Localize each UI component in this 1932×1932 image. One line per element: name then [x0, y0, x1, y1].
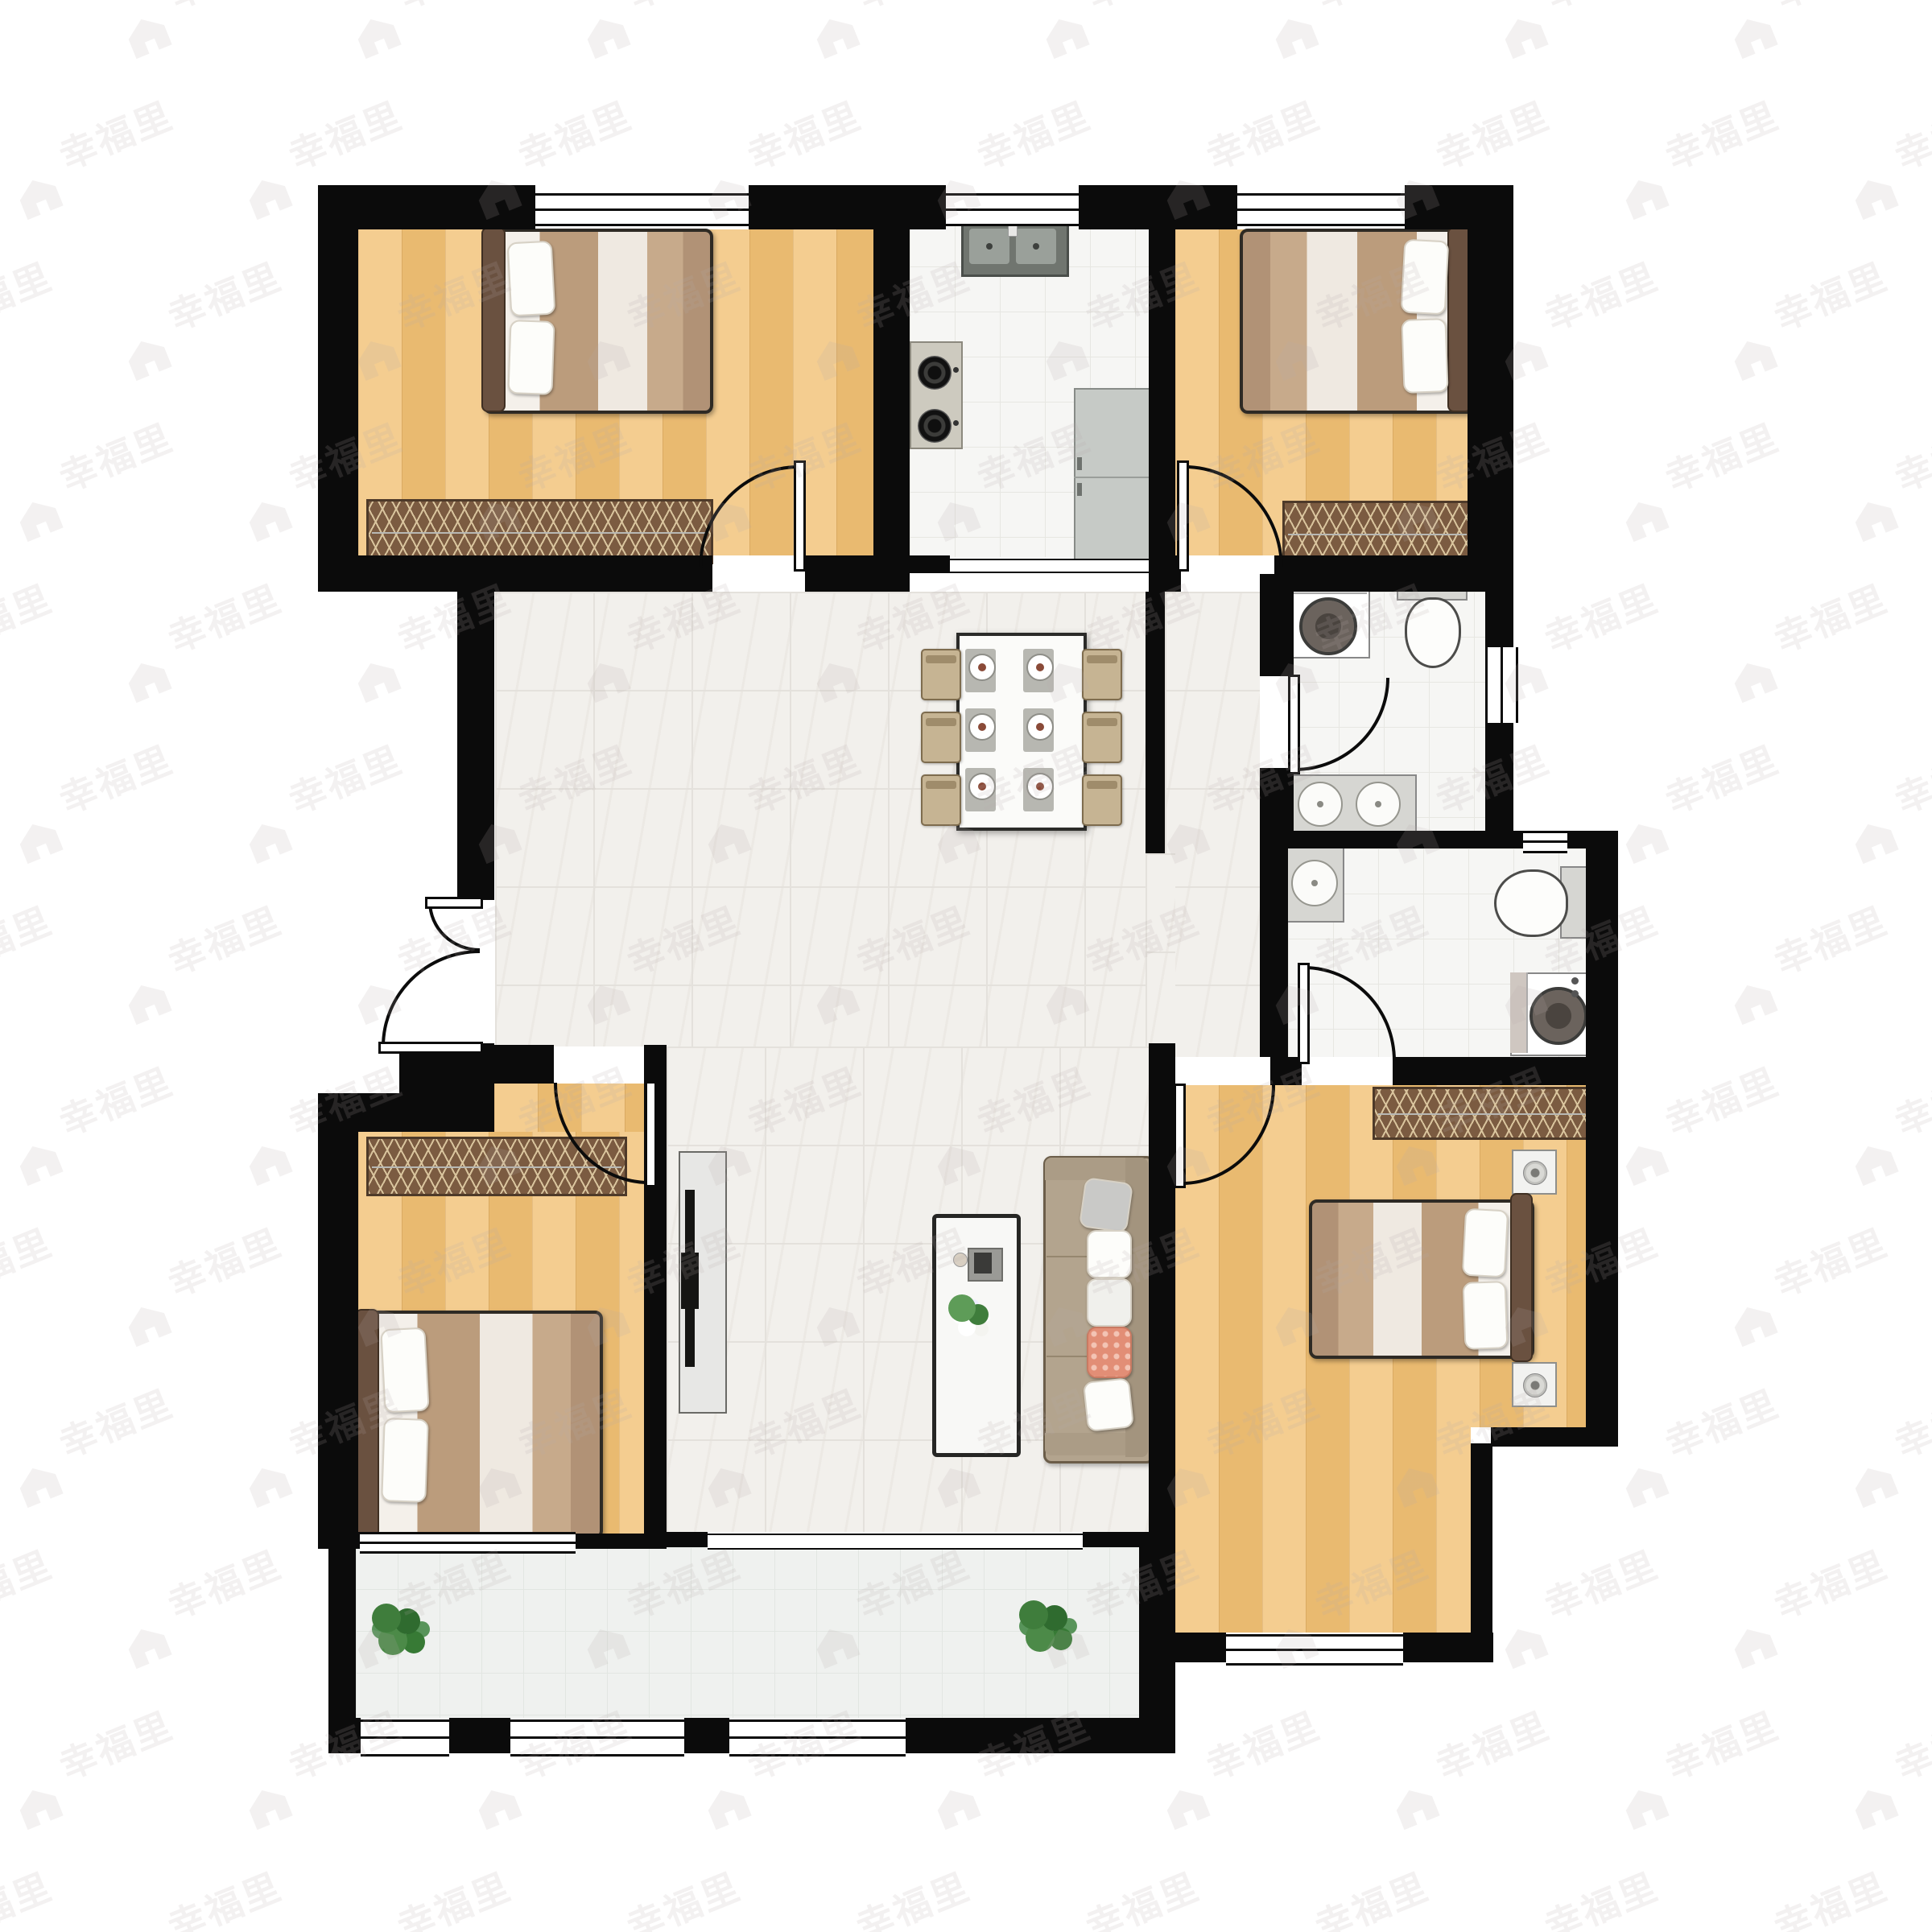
wall — [576, 1534, 664, 1549]
watermark-unit: 幸福里 — [1025, 0, 1237, 73]
nightstand — [1512, 1362, 1557, 1407]
watermark-text: 幸福里 — [1657, 1697, 1786, 1790]
sofa-pillow-coral — [1087, 1327, 1132, 1378]
watermark-unit: 幸福里 — [336, 0, 549, 73]
watermark-text: 幸福里 — [739, 87, 869, 180]
wall — [684, 1718, 729, 1753]
window — [360, 1532, 576, 1554]
watermark-unit: 幸福里 — [0, 1851, 90, 1932]
watermark-unit: 幸福里 — [0, 241, 90, 395]
balcony-sliding-door — [708, 1534, 1083, 1550]
wall — [1586, 848, 1618, 1057]
window — [361, 1719, 449, 1757]
window — [946, 193, 1079, 226]
watermark-text: 幸福里 — [159, 1536, 289, 1629]
watermark-text: 幸福里 — [159, 1214, 289, 1307]
bed-top-left-headboard — [481, 227, 506, 412]
house-icon — [242, 169, 296, 224]
plate — [968, 713, 996, 741]
burner — [918, 356, 952, 390]
house-icon — [1727, 652, 1781, 707]
watermark-unit: 幸福里 — [1604, 1690, 1817, 1844]
house-icon — [1618, 491, 1673, 546]
pillow — [507, 241, 556, 317]
door-leaf-bathroom-main — [1288, 675, 1300, 774]
watermark-text: 幸福里 — [1765, 248, 1895, 341]
wall — [1260, 831, 1523, 848]
sofa-armrest — [1045, 1433, 1125, 1455]
wall — [1403, 1633, 1493, 1662]
watermark-text: 幸福里 — [1077, 1858, 1207, 1932]
watermark-text: 幸福里 — [51, 1375, 180, 1468]
wall — [1146, 592, 1165, 853]
window — [1485, 647, 1518, 723]
watermark-text: 幸福里 — [159, 248, 289, 341]
sofa-pillow — [1087, 1278, 1132, 1327]
house-icon — [12, 813, 67, 868]
dining-chair — [921, 712, 961, 763]
stove-knob — [953, 367, 959, 373]
watermark-unit: 幸福里 — [1484, 1851, 1696, 1932]
house-icon — [1847, 1457, 1902, 1512]
watermark-text: 幸福里 — [1765, 0, 1895, 19]
washbasin — [1291, 860, 1338, 906]
wall — [318, 1093, 358, 1549]
plate — [1026, 773, 1054, 800]
kitchen-opening-threshold — [950, 559, 1149, 573]
pillow — [381, 1418, 429, 1503]
watermark-text: 幸福里 — [159, 570, 289, 663]
sofa-pillow — [1087, 1230, 1132, 1278]
potted-plant — [372, 1604, 401, 1633]
watermark-text: 幸福里 — [0, 570, 60, 663]
house-icon — [121, 974, 175, 1029]
house-icon — [471, 1779, 526, 1834]
wall — [318, 185, 358, 592]
door-leaf-master-bedroom — [1174, 1084, 1186, 1188]
watermark-text: 幸福里 — [389, 1858, 518, 1932]
wall — [1083, 1532, 1149, 1547]
door-leaf-bathroom-ensuite — [1298, 963, 1310, 1064]
watermark-unit: 幸福里 — [1146, 1690, 1358, 1844]
house-icon — [1159, 1779, 1214, 1834]
wall — [449, 1718, 510, 1753]
watermark-unit: 幸福里 — [0, 80, 211, 234]
wall — [1149, 185, 1175, 572]
drain — [986, 243, 993, 250]
plate — [968, 773, 996, 800]
watermark-text: 幸福里 — [1536, 570, 1666, 663]
door-leaf-bedroom-bottom-left — [645, 1081, 657, 1187]
watermark-text: 幸福里 — [618, 0, 748, 19]
watermark-text: 幸福里 — [1886, 731, 1932, 824]
watermark-unit: 幸福里 — [0, 1046, 211, 1200]
house-icon — [121, 652, 175, 707]
watermark-unit: 幸福里 — [1484, 241, 1696, 395]
watermark-text: 幸福里 — [51, 409, 180, 502]
house-icon — [1727, 1296, 1781, 1351]
watermark-unit: 幸福里 — [1604, 1046, 1817, 1200]
watermark-text: 幸福里 — [1886, 409, 1932, 502]
book — [974, 1253, 992, 1274]
pillow — [380, 1327, 429, 1414]
house-icon — [1847, 813, 1902, 868]
wall — [1175, 185, 1237, 229]
watermark-unit: 幸福里 — [566, 1851, 778, 1932]
watermark-unit: 幸福里 — [107, 1851, 320, 1932]
house-icon — [1727, 8, 1781, 63]
dining-chair — [1082, 649, 1122, 700]
watermark-unit: 幸福里 — [1834, 1690, 1932, 1844]
wall — [906, 1718, 1139, 1753]
watermark-unit: 幸福里 — [0, 1207, 90, 1361]
sofa-pillow-gray — [1079, 1177, 1133, 1233]
watermark-text: 幸福里 — [848, 1858, 977, 1932]
watermark-unit: 幸福里 — [107, 885, 320, 1039]
watermark-text: 幸福里 — [159, 892, 289, 985]
cup — [953, 1253, 968, 1267]
window — [1237, 193, 1405, 226]
floor-balcony — [356, 1547, 1139, 1718]
house-icon — [1847, 1779, 1902, 1834]
watermark-unit: 幸福里 — [0, 402, 211, 556]
vanity-basin — [1298, 782, 1343, 827]
window — [729, 1719, 906, 1757]
watermark-unit: 幸福里 — [107, 1529, 320, 1683]
watermark-unit: 幸福里 — [0, 885, 90, 1039]
watermark-text: 幸福里 — [0, 1214, 60, 1307]
pillow — [1401, 239, 1450, 316]
wall — [328, 1718, 361, 1753]
wall — [910, 185, 946, 229]
plate — [1026, 713, 1054, 741]
watermark-text: 幸福里 — [0, 1858, 60, 1932]
house-icon — [1618, 169, 1673, 224]
house-icon — [1497, 1618, 1552, 1673]
watermark-unit: 幸福里 — [1834, 402, 1932, 556]
wall — [1471, 1443, 1492, 1662]
house-icon — [1497, 8, 1552, 63]
refrigerator — [1074, 388, 1153, 573]
watermark-unit: 幸福里 — [0, 1529, 90, 1683]
watermark-unit: 幸福里 — [1834, 1368, 1932, 1522]
watermark-unit: 幸福里 — [1834, 80, 1932, 234]
watermark-unit: 幸福里 — [107, 563, 320, 717]
watermark-unit: 幸福里 — [0, 563, 90, 717]
watermark-text: 幸福里 — [51, 731, 180, 824]
watermark-text: 幸福里 — [848, 0, 977, 19]
house-icon — [1847, 1135, 1902, 1190]
house-icon — [350, 8, 405, 63]
watermark-unit: 幸福里 — [1604, 80, 1817, 234]
house-icon — [1389, 1779, 1443, 1834]
wall — [1485, 576, 1513, 647]
house-icon — [1727, 1618, 1781, 1673]
window — [1226, 1634, 1403, 1666]
fridge-handle — [1077, 457, 1082, 470]
door-leaf-bedroom-top-left — [794, 460, 806, 572]
house-icon — [121, 1618, 175, 1673]
watermark-text: 幸福里 — [1536, 1536, 1666, 1629]
watermark-unit: 幸福里 — [1713, 1207, 1926, 1361]
wall — [664, 1532, 708, 1547]
watermark-text: 幸福里 — [1886, 87, 1932, 180]
watermark-unit: 幸福里 — [107, 241, 320, 395]
drain — [1033, 243, 1039, 250]
potted-plant — [1019, 1600, 1048, 1629]
watermark-text: 幸福里 — [280, 731, 410, 824]
watermark-unit: 幸福里 — [1484, 0, 1696, 73]
house-icon — [121, 8, 175, 63]
wall — [873, 185, 910, 572]
house-icon — [242, 813, 296, 868]
house-icon — [580, 8, 634, 63]
wall — [1149, 555, 1181, 592]
watermark-text: 幸福里 — [618, 1858, 748, 1932]
watermark-unit: 幸福里 — [0, 0, 90, 73]
washer2-knob — [1571, 990, 1579, 997]
wardrobe-master — [1373, 1087, 1591, 1140]
watermark-text: 幸福里 — [389, 0, 518, 19]
watermark-text: 幸福里 — [159, 0, 289, 19]
house-icon — [1618, 1457, 1673, 1512]
house-icon — [809, 8, 864, 63]
house-icon — [1618, 813, 1673, 868]
watermark-text: 幸福里 — [510, 87, 639, 180]
house-icon — [242, 1457, 296, 1512]
watermark-unit: 幸福里 — [1713, 1529, 1926, 1683]
watermark-text: 幸福里 — [1427, 87, 1557, 180]
wall — [1485, 723, 1513, 831]
watermark-text: 幸福里 — [1427, 1697, 1557, 1790]
window — [535, 193, 749, 226]
pillow — [507, 320, 555, 395]
watermark-text: 幸福里 — [51, 87, 180, 180]
house-icon — [1268, 8, 1323, 63]
watermark-text: 幸福里 — [1077, 0, 1207, 19]
wall — [457, 592, 494, 900]
watermark-text: 幸福里 — [1886, 1375, 1932, 1468]
watermark-unit: 幸福里 — [1713, 885, 1926, 1039]
washer2-knob — [1571, 977, 1579, 985]
watermark-text: 幸福里 — [1198, 1697, 1327, 1790]
watermark-unit: 幸福里 — [1713, 563, 1926, 717]
plate — [1026, 654, 1054, 681]
watermark-text: 幸福里 — [1657, 87, 1786, 180]
watermark-text: 幸福里 — [1886, 1053, 1932, 1146]
toilet-bowl — [1494, 869, 1568, 937]
house-icon — [12, 1457, 67, 1512]
watermark-unit: 幸福里 — [107, 1207, 320, 1361]
wall — [1567, 831, 1618, 848]
watermark-text: 幸福里 — [280, 87, 410, 180]
watermark-text: 幸福里 — [1886, 1697, 1932, 1790]
watermark-unit: 幸福里 — [228, 724, 440, 878]
watermark-text: 幸福里 — [1536, 0, 1666, 19]
wall — [1260, 848, 1288, 1057]
watermark-text: 幸福里 — [1657, 731, 1786, 824]
watermark-unit: 幸福里 — [1604, 724, 1817, 878]
floor-master-bedroom-lower — [1175, 1427, 1471, 1633]
dining-chair — [921, 774, 961, 826]
watermark-text: 幸福里 — [1765, 892, 1895, 985]
watermark-unit: 幸福里 — [1484, 1529, 1696, 1683]
house-icon — [1727, 330, 1781, 385]
floor-corridor-gap — [1146, 853, 1175, 1046]
fridge-door-split — [1074, 477, 1150, 478]
watermark-unit: 幸福里 — [795, 1851, 1008, 1932]
house-icon — [242, 1779, 296, 1834]
watermark-unit: 幸福里 — [795, 0, 1008, 73]
watermark-unit: 幸福里 — [1834, 724, 1932, 878]
watermark-unit: 幸福里 — [1254, 0, 1467, 73]
watermark-unit: 幸福里 — [1713, 1851, 1926, 1932]
watermark-unit: 幸福里 — [336, 1851, 549, 1932]
watermark-text: 幸福里 — [0, 892, 60, 985]
entry-door-leaf-large — [378, 1042, 483, 1054]
dining-chair — [1082, 774, 1122, 826]
wall — [494, 1045, 554, 1084]
washer2-side-panel — [1510, 972, 1528, 1053]
watermark-text: 幸福里 — [1765, 1858, 1895, 1932]
watermark-unit: 幸福里 — [1713, 241, 1926, 395]
house-icon — [930, 1779, 985, 1834]
watermark-unit: 幸福里 — [1375, 1690, 1587, 1844]
wall — [318, 185, 535, 229]
watermark-unit: 幸福里 — [1713, 0, 1926, 73]
wall — [318, 1532, 360, 1549]
flower-bouquet — [948, 1294, 976, 1322]
watermark-text: 幸福里 — [1536, 1858, 1666, 1932]
watermark-text: 幸福里 — [968, 87, 1098, 180]
entry-door-leaf-small — [425, 897, 483, 909]
wall — [1139, 1547, 1175, 1753]
window — [510, 1719, 684, 1757]
pillow — [1401, 318, 1448, 394]
wall — [1393, 1057, 1618, 1085]
house-icon — [1847, 169, 1902, 224]
house-icon — [1618, 1135, 1673, 1190]
watermark-unit: 幸福里 — [0, 724, 211, 878]
wall — [1274, 555, 1513, 592]
wall — [873, 555, 950, 573]
watermark-text: 幸福里 — [1657, 1053, 1786, 1146]
floor-plan: 幸福里幸福里幸福里幸福里幸福里幸福里幸福里幸福里幸福里幸福里幸福里幸福里幸福里幸… — [0, 0, 1932, 1932]
watermark-text: 幸福里 — [159, 1858, 289, 1932]
wall — [1491, 1427, 1618, 1447]
house-icon — [121, 330, 175, 385]
pillow — [1462, 1208, 1509, 1278]
watermark-text: 幸福里 — [1198, 87, 1327, 180]
watermark-text: 幸福里 — [1536, 248, 1666, 341]
tv-mount — [681, 1253, 699, 1309]
watermark-unit: 幸福里 — [1834, 1046, 1932, 1200]
fridge-handle — [1077, 483, 1082, 496]
wall — [1586, 1057, 1618, 1443]
wall — [318, 555, 712, 592]
sofa-pillow — [1083, 1377, 1134, 1432]
watermark-text: 幸福里 — [1657, 409, 1786, 502]
wall — [1260, 768, 1294, 832]
door-leaf-bedroom-top-right — [1177, 460, 1189, 572]
watermark-text: 幸福里 — [0, 1536, 60, 1629]
house-icon — [242, 1135, 296, 1190]
window — [1523, 831, 1567, 853]
pillow — [1463, 1281, 1509, 1350]
entry-door-arc-large — [382, 950, 480, 1046]
watermark-unit: 幸福里 — [1604, 1368, 1817, 1522]
dining-chair — [1082, 712, 1122, 763]
floor-bath-corridor — [1165, 592, 1260, 1057]
watermark-text: 幸福里 — [1765, 1214, 1895, 1307]
watermark-unit: 幸福里 — [0, 1690, 211, 1844]
house-icon — [242, 491, 296, 546]
sofa-armrest — [1045, 1158, 1125, 1180]
watermark-unit: 幸福里 — [566, 0, 778, 73]
house-icon — [12, 169, 67, 224]
vanity-basin — [1356, 782, 1401, 827]
washer-drum — [1299, 597, 1357, 655]
wall — [1175, 1633, 1226, 1662]
watermark-unit: 幸福里 — [0, 1368, 211, 1522]
wardrobe-top-left — [366, 499, 713, 564]
stove-knob — [953, 420, 959, 426]
watermark-text: 幸福里 — [0, 0, 60, 19]
house-icon — [1618, 1779, 1673, 1834]
watermark-text: 幸福里 — [0, 248, 60, 341]
bed-bottom-left-headboard — [355, 1309, 379, 1538]
burner — [918, 409, 952, 443]
watermark-unit: 幸福里 — [107, 0, 320, 73]
watermark-text: 幸福里 — [51, 1053, 180, 1146]
watermark-unit: 幸福里 — [1254, 1851, 1467, 1932]
house-icon — [1727, 974, 1781, 1029]
house-icon — [12, 491, 67, 546]
watermark-text: 幸福里 — [1765, 1536, 1895, 1629]
watermark-unit: 幸福里 — [1025, 1851, 1237, 1932]
watermark-text: 幸福里 — [1307, 0, 1436, 19]
house-icon — [1847, 491, 1902, 546]
watermark-text: 幸福里 — [1657, 1375, 1786, 1468]
wall — [1260, 574, 1294, 676]
house-icon — [12, 1135, 67, 1190]
washer2-drum — [1529, 987, 1587, 1045]
bed-master-headboard — [1510, 1193, 1533, 1362]
house-icon — [121, 1296, 175, 1351]
wall — [1468, 185, 1513, 576]
house-icon — [12, 1779, 67, 1834]
plate — [968, 654, 996, 681]
nightstand — [1512, 1150, 1557, 1195]
house-icon — [1038, 8, 1093, 63]
toilet-bowl — [1405, 597, 1461, 668]
watermark-text: 幸福里 — [1765, 570, 1895, 663]
entry-door-arc-small — [428, 902, 480, 952]
watermark-text: 幸福里 — [51, 1697, 180, 1790]
dining-chair — [921, 649, 961, 700]
watermark-text: 幸福里 — [1307, 1858, 1436, 1932]
house-icon — [700, 1779, 755, 1834]
watermark-unit: 幸福里 — [1604, 402, 1817, 556]
house-icon — [350, 652, 405, 707]
